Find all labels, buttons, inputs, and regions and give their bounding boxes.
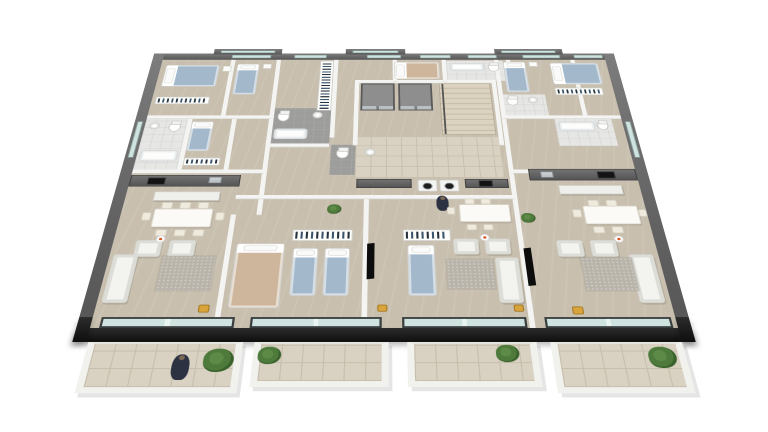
- wardrobe-right: [554, 88, 604, 95]
- armchair: [589, 240, 619, 257]
- armchair: [484, 239, 511, 255]
- dining-table-left: [150, 209, 213, 228]
- dining-chair: [215, 212, 226, 220]
- bathroom-sink: [527, 97, 538, 103]
- dining-chair: [447, 207, 456, 214]
- bathtub-right: [557, 121, 596, 131]
- sliding-glass-door-2: [249, 317, 381, 328]
- double-bed-left: [161, 65, 220, 87]
- floor-plan-render: [0, 0, 768, 432]
- armchair: [556, 240, 585, 257]
- dining-chair: [466, 224, 477, 230]
- shower-tray: [273, 129, 308, 140]
- wall-right-mid-h: [503, 115, 621, 118]
- rug-right-living: [580, 258, 639, 291]
- kitchen-island-right: [558, 185, 624, 194]
- window-top-5: [468, 55, 497, 58]
- kitchenette-centerleft: [356, 179, 412, 188]
- dining-chair: [638, 209, 648, 216]
- dining-table-right: [582, 206, 641, 224]
- sliding-glass-door-4: [544, 317, 673, 328]
- coffee-table-flower: [480, 234, 490, 241]
- kitchen-island-left: [153, 191, 221, 200]
- bathroom-sink: [365, 149, 376, 156]
- dining-chair: [161, 202, 174, 209]
- wall-left-mid-h: [147, 115, 271, 118]
- rug-left-living: [155, 256, 216, 291]
- wardrobe-centerright: [403, 229, 451, 241]
- wardrobe-queenroom: [292, 229, 353, 241]
- window-bumpout-2: [353, 51, 399, 54]
- nightstand: [222, 66, 232, 71]
- sliding-glass-door-1: [99, 317, 235, 328]
- gold-stool: [513, 305, 524, 312]
- single-bed-centerright: [407, 245, 437, 296]
- single-bed-left: [232, 64, 260, 95]
- tan-bed-topcenter: [394, 62, 440, 79]
- kitchen-counter-left: [128, 175, 241, 187]
- window-top-4: [420, 55, 451, 58]
- wall-bath-centerleft-bottom: [270, 144, 329, 147]
- tv-centerright-living: [367, 243, 375, 279]
- dining-chair: [611, 226, 624, 233]
- dining-chair: [179, 202, 191, 209]
- kitchen-sink-left: [208, 177, 222, 183]
- wardrobe-left-1: [154, 97, 210, 104]
- elevator-shaft-2: [398, 83, 433, 110]
- nightstand: [263, 64, 272, 69]
- wall-core-top: [355, 80, 494, 83]
- dining-chair: [572, 209, 583, 217]
- potted-plant-centerright: [521, 213, 537, 223]
- floor-plan-scene: [57, 54, 711, 397]
- dining-chair: [587, 200, 600, 206]
- wall-left-kitchen-h: [132, 170, 264, 173]
- cooktop-left: [147, 178, 166, 185]
- window-top-2: [294, 55, 327, 58]
- dining-chair: [483, 224, 494, 230]
- cooktop-centerright: [479, 180, 494, 186]
- toilet: [506, 97, 519, 106]
- twin-bed-2: [322, 248, 350, 296]
- cooktop-right: [597, 172, 616, 179]
- window-top-6: [522, 55, 560, 58]
- balcony-3: [407, 342, 543, 387]
- staircase: [439, 83, 497, 134]
- window-top-7: [573, 55, 603, 58]
- balcony-plant-3: [495, 345, 520, 362]
- hall-wardrobe-tall: [317, 61, 335, 111]
- dining-chair: [173, 229, 186, 236]
- dining-chair: [464, 199, 475, 205]
- wall-bedzone-left-h: [235, 195, 366, 199]
- window-top-3: [367, 55, 401, 58]
- window-bumpout-1: [221, 51, 276, 54]
- double-bed-right: [549, 63, 603, 85]
- bathtub-topcenter: [449, 63, 484, 71]
- dining-chair: [593, 226, 606, 233]
- gold-stool: [377, 305, 387, 312]
- nightstand: [528, 62, 537, 67]
- dining-chair: [197, 202, 209, 209]
- elevator-shaft-1: [360, 83, 395, 110]
- twin-bed-1: [289, 248, 319, 296]
- toilet: [487, 63, 499, 71]
- armchair: [167, 240, 197, 257]
- lobby-floor: [355, 137, 504, 177]
- window-top-1: [232, 55, 272, 58]
- window-bumpout-3: [501, 51, 556, 54]
- dining-chair: [480, 199, 491, 205]
- washing-machine-2: [439, 180, 460, 192]
- dining-table-centerright: [459, 204, 512, 222]
- balcony-4: [550, 342, 696, 393]
- queen-bed-tan: [227, 243, 285, 308]
- rug-centerright-living: [446, 259, 496, 289]
- dining-chair: [141, 212, 152, 220]
- bathtub-left: [138, 150, 179, 162]
- floor-slab-front: [72, 328, 696, 342]
- gold-stool: [572, 306, 585, 314]
- washing-machine-1: [417, 180, 437, 192]
- wardrobe-left-2: [182, 158, 220, 166]
- kitchen-sink-right: [540, 172, 554, 178]
- dining-chair: [605, 200, 618, 206]
- armchair: [453, 239, 480, 255]
- gold-stool: [197, 305, 210, 313]
- dining-chair: [192, 229, 205, 236]
- sliding-glass-door-3: [402, 317, 528, 328]
